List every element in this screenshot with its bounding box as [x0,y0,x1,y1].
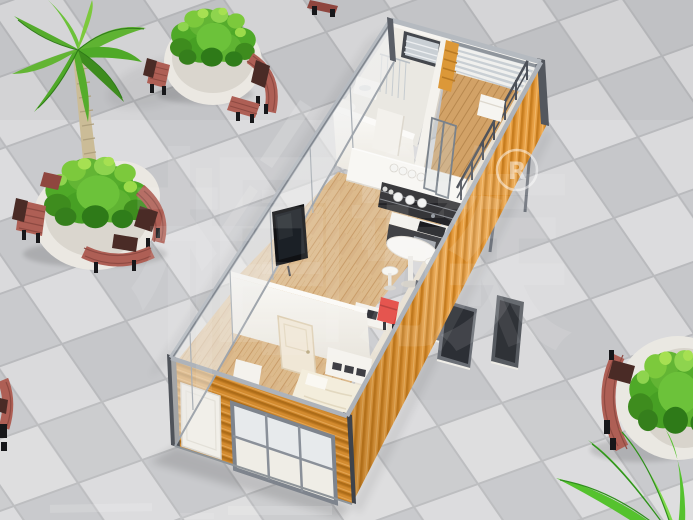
render-viewport: 柜族 R [0,0,693,520]
registered-trademark-letter: R [508,157,526,185]
scene-render: 柜族 R [0,0,693,520]
